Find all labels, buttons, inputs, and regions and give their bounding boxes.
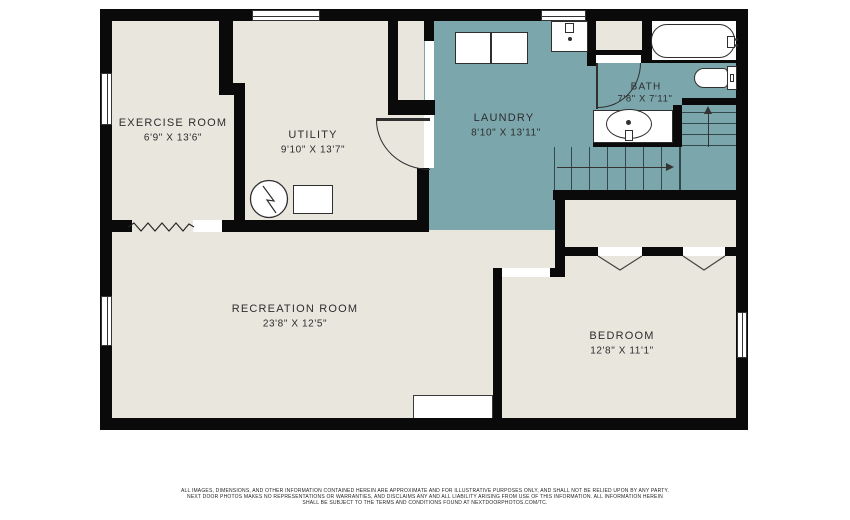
bathtub-icon [651,24,735,58]
stair-tread [682,145,736,146]
toilet-flush-mark [730,74,734,82]
stair-tread [625,147,626,190]
recreation-room-label: RECREATION ROOM [232,303,359,315]
bathtub-faucet [727,36,735,48]
furnace-icon [293,185,333,214]
wall-utility-laundry-upper-stub [424,21,434,41]
exercise-room-label: EXERCISE ROOM [119,117,228,129]
exercise-opening [193,220,222,232]
stair-walkline-upper [708,113,709,147]
dryer-icon [491,32,528,64]
wall-closet-bottom-1 [565,247,598,256]
laundry-sink-drain [568,37,572,41]
bathtub-handle [735,44,738,47]
laundry-room-label: LAUNDRY [474,112,535,124]
utility-room-label: UTILITY [288,129,337,141]
wall-closet-bottom-3 [725,247,736,256]
recreation-niche [413,395,493,418]
laundry-room-dimensions: 8'10" X 13'11" [471,128,541,139]
disclaimer-text: ALL IMAGES, DIMENSIONS, AND OTHER INFORM… [0,488,850,506]
stair-tread [554,147,555,190]
stair-tread [682,134,736,135]
bath-door-opening [596,55,641,63]
stair-tread [661,147,662,190]
wall-exercise-utility-lower [234,83,245,232]
closet-bifold-icon [598,255,642,273]
bedroom-label: BEDROOM [589,330,654,342]
bedroom-dimensions: 12'8" X 11'1" [590,346,654,357]
recreation-room-dimensions: 23'8" X 12'5" [263,319,327,330]
wall-exterior-bottom [100,418,748,430]
vanity-drain [626,120,631,125]
wall-utility-closet-bottom [388,100,435,115]
stair-tread [682,123,736,124]
window-exercise-left [101,73,112,125]
stair-walkline-lower [557,167,667,168]
vanity-faucet [625,130,633,141]
bath-room-label: BATH [631,82,662,93]
washer-icon [455,32,491,64]
floor-plan: EXERCISE ROOM 6'9" X 13'6" UTILITY 9'10"… [0,0,850,520]
laundry-closet-opening [425,41,434,100]
exercise-room-dimensions: 6'9" X 13'6" [144,133,202,144]
water-heater-icon [249,179,289,219]
break-line-icon [128,221,194,233]
stair-run-upper [682,105,736,190]
wall-laundry-closet [555,190,565,277]
wall-closet-bottom-2 [642,247,683,256]
bedroom-entry-opening [502,268,550,277]
wall-utility-laundry-lower [417,168,429,232]
stair-up-arrow-north [704,106,712,114]
toilet-bowl-icon [694,68,728,88]
window-bedroom-right [737,312,747,358]
wall-below-stairs [553,190,736,200]
tub-alcove-edge [644,60,736,63]
window-top-laundry [541,10,586,21]
stair-tread [607,147,608,190]
stair-tread [643,147,644,190]
stair-tread [571,147,572,190]
stair-landing-edge [679,147,681,190]
window-top-utility [252,10,320,21]
disclaimer-line-3: SHALL BE SUBJECT TO THE TERMS AND CONDIT… [0,500,850,506]
bath-room-dimensions: 7'8" X 7'11" [618,94,673,105]
laundry-sink-faucet [565,23,574,33]
wall-bedroom-top-stub [550,268,565,277]
utility-room-dimensions: 9'10" X 13'7" [281,145,345,156]
closet-bifold-icon [683,255,725,273]
bathtub-handle [735,38,738,41]
wall-recreation-bedroom [493,268,502,418]
stair-run-lower [553,147,682,190]
wall-exercise-utility-upper [219,21,233,85]
stair-tread [589,147,590,190]
wall-above-stairs [682,98,736,105]
wall-utility-bottom [222,220,429,232]
stair-up-arrow-east [666,163,674,171]
window-recreation-left [101,296,112,346]
wall-exterior-right [736,9,748,430]
